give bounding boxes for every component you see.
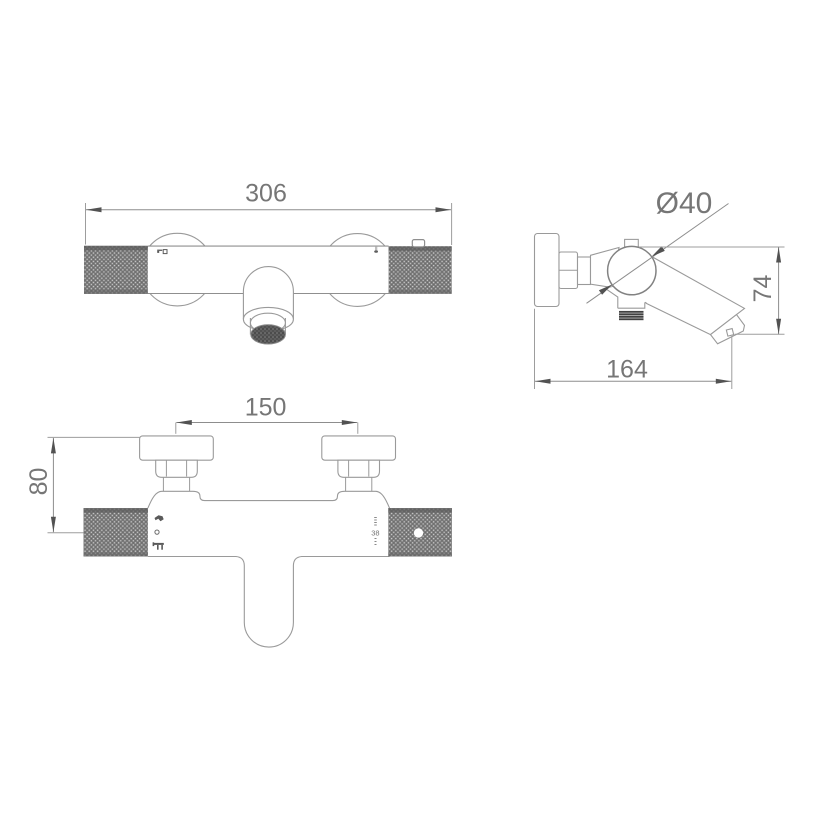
svg-text:164: 164 xyxy=(606,356,648,384)
svg-text:80: 80 xyxy=(25,468,53,496)
svg-text:306: 306 xyxy=(245,180,287,208)
svg-text:Ø40: Ø40 xyxy=(656,187,713,220)
svg-text:38: 38 xyxy=(371,528,379,537)
svg-text:150: 150 xyxy=(245,394,287,422)
svg-text:74: 74 xyxy=(749,275,777,303)
